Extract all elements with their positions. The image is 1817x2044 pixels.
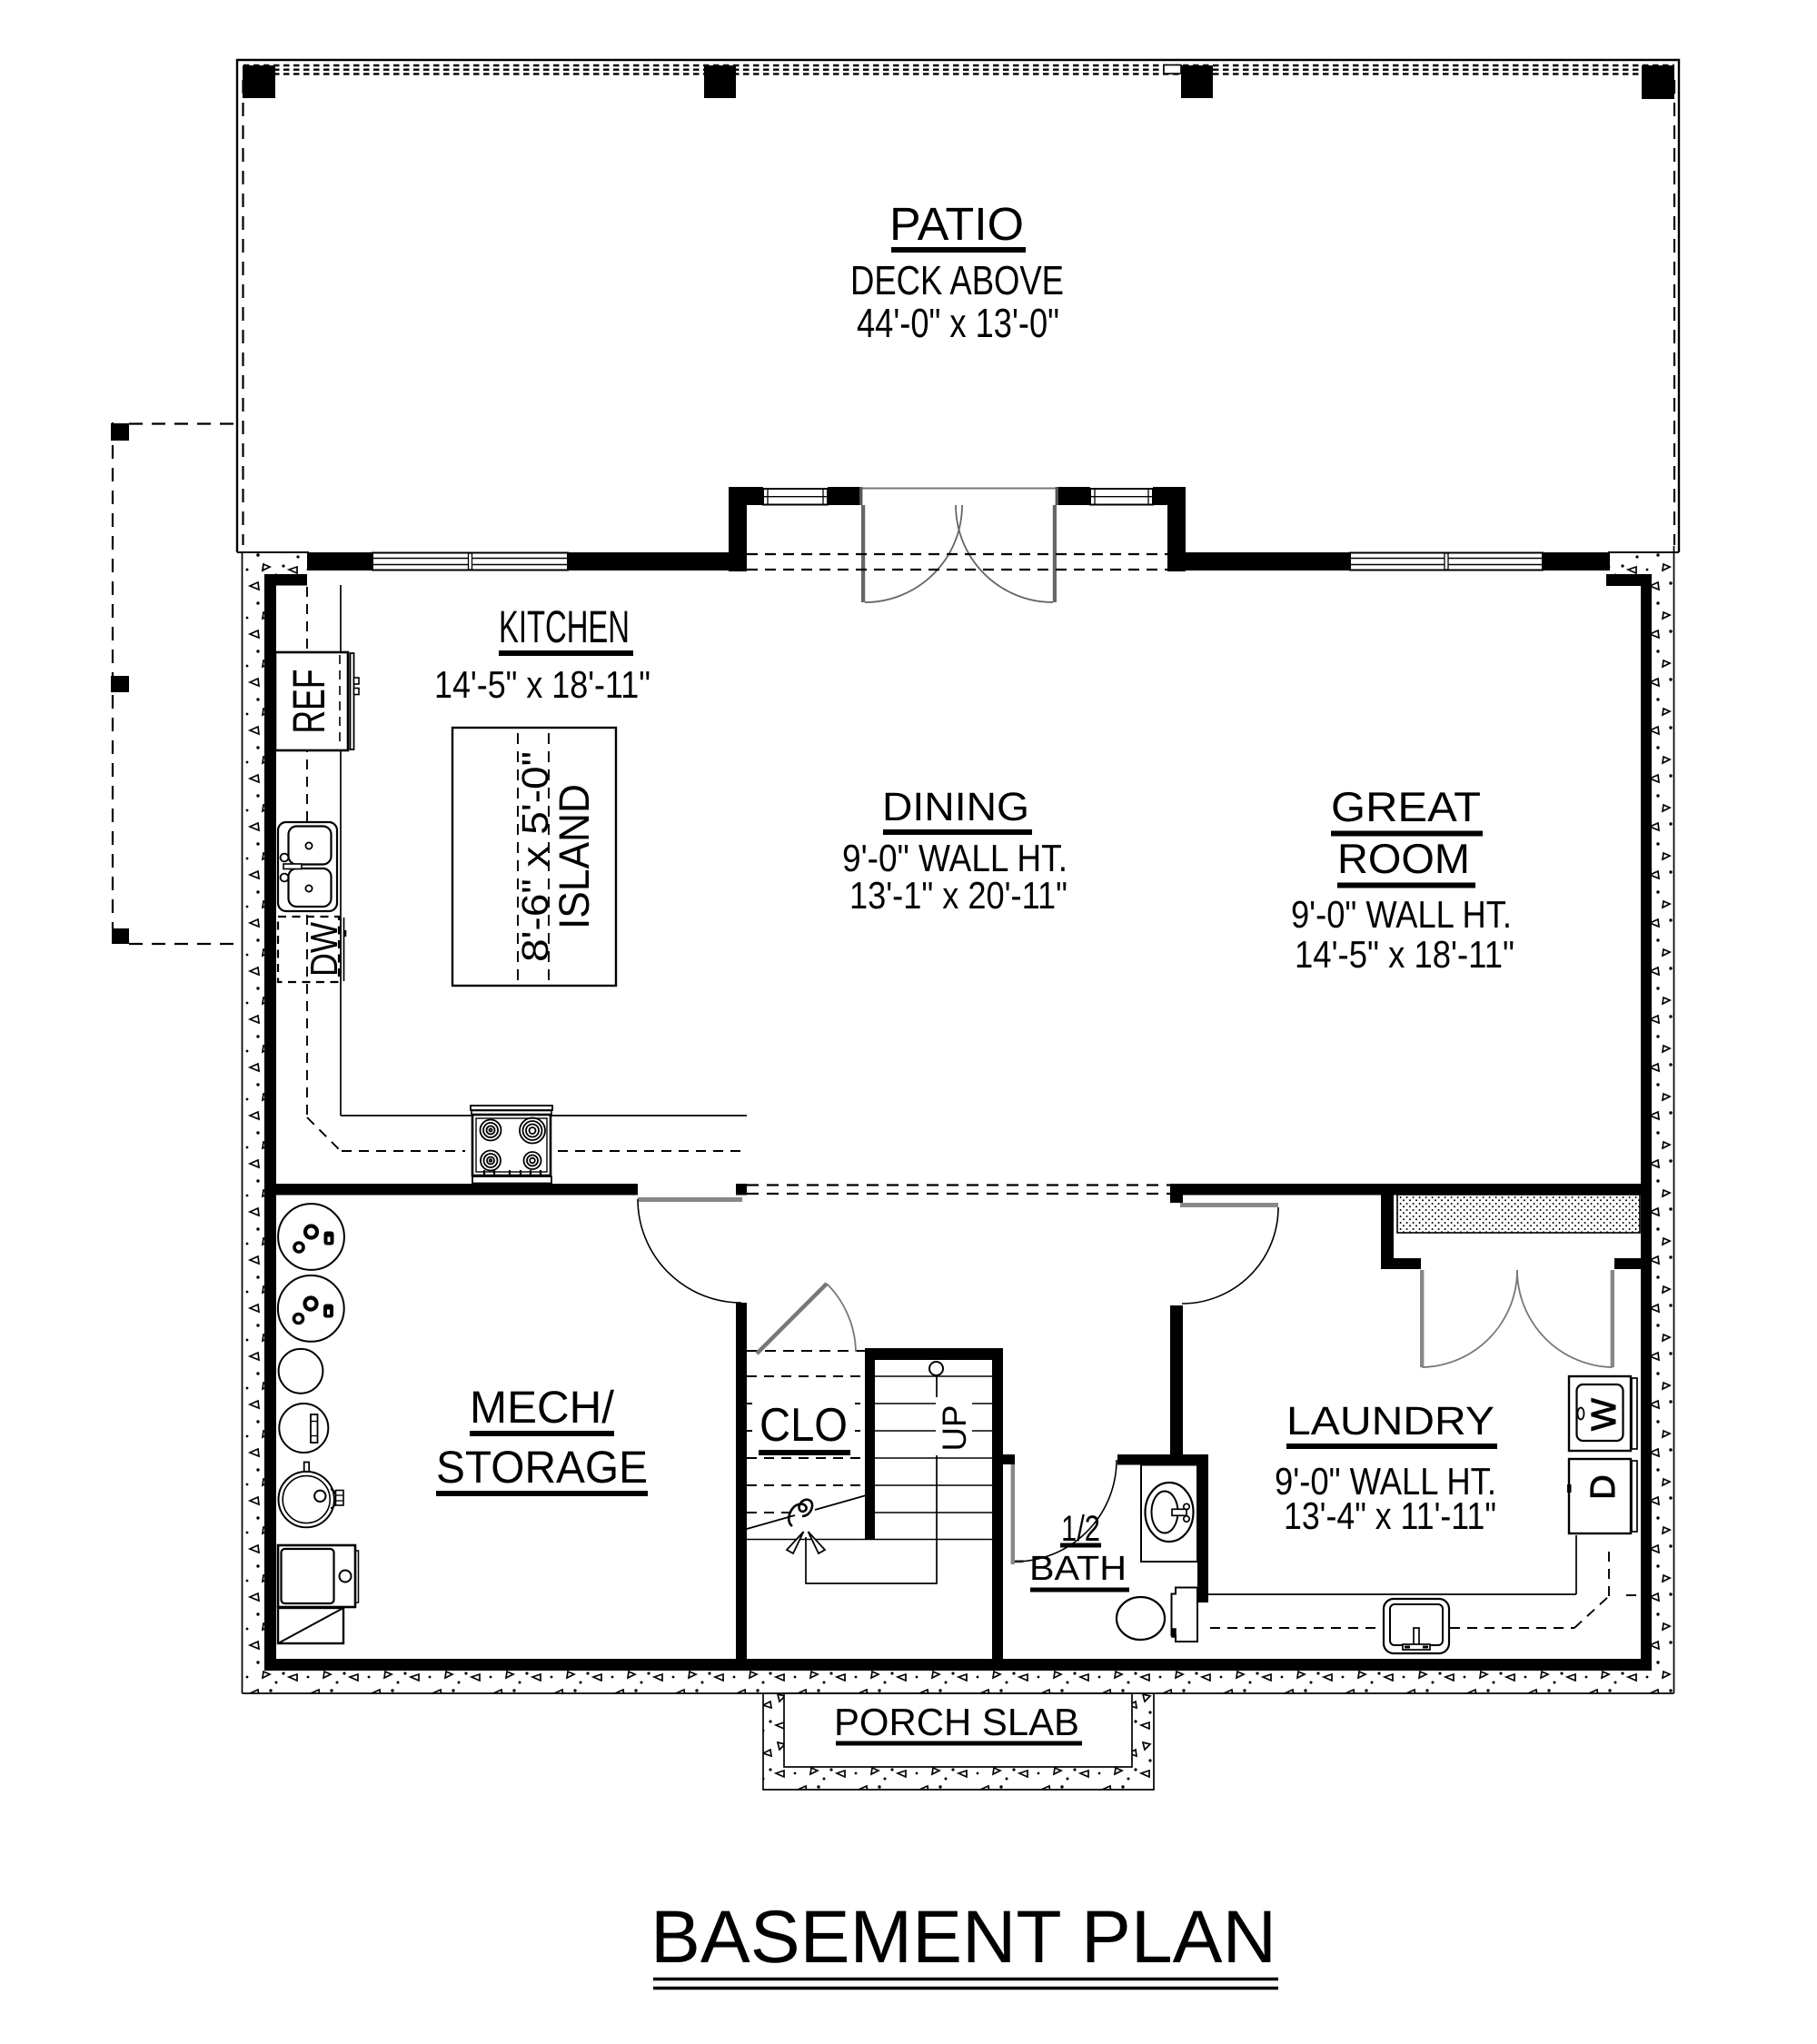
svg-text:ROOM: ROOM <box>1337 835 1470 882</box>
svg-text:9'-0" WALL HT.: 9'-0" WALL HT. <box>1291 893 1512 936</box>
svg-text:9'-0" WALL HT.: 9'-0" WALL HT. <box>842 837 1067 879</box>
svg-text:LAUNDRY: LAUNDRY <box>1286 1399 1494 1444</box>
svg-text:STORAGE: STORAGE <box>436 1442 648 1493</box>
svg-text:BASEMENT PLAN: BASEMENT PLAN <box>650 1896 1276 1979</box>
svg-text:GREAT: GREAT <box>1331 783 1481 830</box>
svg-text:DINING: DINING <box>882 785 1029 829</box>
svg-text:PORCH SLAB: PORCH SLAB <box>834 1701 1079 1743</box>
svg-text:UP: UP <box>936 1405 973 1452</box>
svg-text:D: D <box>1584 1474 1623 1499</box>
svg-text:DW: DW <box>303 922 345 977</box>
svg-text:W: W <box>1585 1398 1623 1431</box>
svg-text:MECH/: MECH/ <box>470 1382 614 1433</box>
svg-text:REF: REF <box>283 670 334 734</box>
svg-text:14'-5" x 18'-11": 14'-5" x 18'-11" <box>434 663 650 706</box>
svg-text:13'-4" x 11'-11": 13'-4" x 11'-11" <box>1284 1494 1496 1537</box>
svg-text:CLO: CLO <box>760 1399 848 1452</box>
svg-text:BATH: BATH <box>1029 1550 1127 1588</box>
svg-text:14'-5" x 18'-11": 14'-5" x 18'-11" <box>1295 933 1514 976</box>
svg-text:44'-0" x 13'-0": 44'-0" x 13'-0" <box>857 300 1059 346</box>
svg-text:13'-1" x 20'-11": 13'-1" x 20'-11" <box>849 874 1067 917</box>
svg-text:PATIO: PATIO <box>889 198 1024 250</box>
svg-text:KITCHEN: KITCHEN <box>499 601 630 652</box>
svg-text:DECK ABOVE: DECK ABOVE <box>850 257 1064 303</box>
svg-text:ISLAND: ISLAND <box>550 784 598 929</box>
svg-text:1/2: 1/2 <box>1061 1509 1100 1549</box>
